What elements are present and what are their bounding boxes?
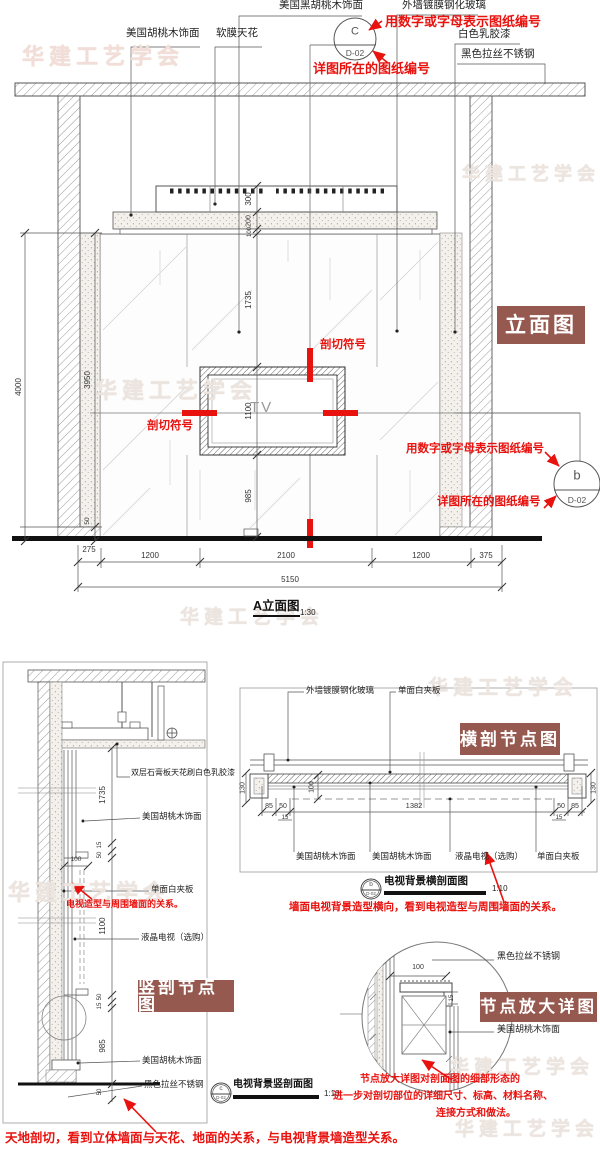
label-walnut-a-hs: 美国胡桃木饰面 [296, 852, 356, 861]
hs-title-underline [384, 891, 486, 895]
badge-horizontal-section: 横剖节点图 [460, 723, 560, 755]
dim-hs-85l: 85 [265, 803, 273, 810]
note-cut-symbol-top: 剖切符号 [320, 340, 366, 352]
dim-node-15: 15 [449, 995, 455, 1002]
note-cut-symbol-left: 剖切符号 [147, 421, 193, 433]
vs-title-sheet: D-02 [216, 1096, 226, 1101]
vs-title-underline [233, 1095, 319, 1099]
callout-letter-b: b [573, 469, 580, 482]
dim-5150: 5150 [281, 576, 299, 584]
label-walnut-veneer: 美国胡桃木饰面 [126, 28, 200, 39]
dim-hs-15r: 15 [556, 815, 563, 821]
dim-vs-1100: 1100 [99, 917, 107, 934]
dim-hs-85r: 85 [571, 803, 579, 810]
label-black-walnut: 美国黑胡桃木饰面 [279, 0, 363, 11]
callout-letter-c: C [351, 27, 359, 38]
watermark: 华建工艺学会 [22, 46, 184, 68]
dim-1200-right: 1200 [412, 552, 430, 560]
hs-title-letter: b [369, 882, 373, 889]
dim-200: 200 [246, 215, 253, 227]
vs-title: 电视背景竖剖面图 [233, 1080, 313, 1090]
dim-vs-15a: 15 [97, 842, 103, 849]
dim-4000: 4000 [15, 378, 23, 396]
note-drawing-number-top: 用数字或字母表示图纸编号 [385, 15, 541, 28]
label-walnut-bottom: 美国胡桃木饰面 [142, 1056, 202, 1065]
watermark: 华建工艺学会 [462, 165, 600, 183]
callout-sheet-b: D-02 [568, 496, 586, 505]
dim-hs-130-right: 130 [591, 782, 598, 794]
note-node-line1: 节点放大详图对剖面图的细部形态的 [360, 1075, 520, 1085]
note-drawing-number-right: 用数字或字母表示图纸编号 [406, 444, 544, 456]
dim-50-floor: 50 [85, 517, 92, 524]
label-white-board: 单面白夹板 [151, 885, 194, 894]
dim-1200-left: 1200 [141, 552, 159, 560]
note-sheet-number-top: 详图所在的图纸编号 [313, 62, 430, 75]
dim-985: 985 [245, 489, 253, 502]
label-glass-hs: 外墙镀膜钢化玻璃 [306, 686, 374, 695]
dim-vs-1735: 1735 [99, 786, 107, 804]
label-lcd-tv: 液晶电视（选购） [141, 933, 209, 942]
label-gypsum-ceiling: 双层石膏板天花刷白色乳胶漆 [131, 769, 235, 777]
dim-375: 375 [479, 552, 492, 560]
dim-vs-50b: 50 [97, 994, 103, 1001]
hs-title-sheet: D-02 [366, 892, 376, 897]
dim-hs-1382: 1382 [406, 802, 423, 810]
dim-vs-15b: 15 [97, 1003, 103, 1010]
dim-vs-50a: 50 [97, 852, 103, 859]
label-black-steel: 黑色拉丝不锈钢 [461, 49, 535, 60]
dim-3950: 3950 [84, 371, 92, 389]
note-node-line2: 进一步对剖切部位的详细尺寸、标高、材料名称、 [333, 1092, 553, 1102]
label-walnut-top: 美国胡桃木饰面 [142, 812, 202, 821]
label-white-board-top-hs: 单面白夹板 [398, 686, 441, 695]
dim-vs-100: 100 [71, 857, 82, 864]
dim-2100: 2100 [277, 552, 295, 560]
note-tv-relation: 电视造型与周围墙面的关系。 [66, 900, 183, 909]
watermark: 华建工艺学会 [428, 678, 578, 698]
badge-node-detail: 节点放大详图 [480, 992, 597, 1022]
label-walnut-b-hs: 美国胡桃木饰面 [372, 852, 432, 861]
note-sheet-number-right: 详图所在的图纸编号 [437, 497, 541, 509]
dim-hs-15l: 15 [282, 815, 289, 821]
badge-vertical-section: 竖剖节点图 [138, 980, 234, 1012]
label-white-paint: 白色乳胶漆 [458, 29, 511, 40]
dim-1735: 1735 [245, 291, 253, 309]
label-soft-ceiling: 软膜天花 [216, 28, 258, 39]
label-white-board-hs: 单面白夹板 [537, 852, 580, 861]
label-coated-glass: 外墙镀膜钢化玻璃 [402, 0, 486, 11]
dim-hs-130-left: 130 [240, 782, 247, 794]
dim-hs-100: 100 [309, 781, 316, 793]
note-node-line3: 连接方式和做法。 [436, 1109, 516, 1119]
horizontal-section-drawing [240, 688, 597, 902]
hs-title: 电视背景横剖面图 [384, 876, 468, 887]
dim-275: 275 [82, 546, 95, 554]
note-horizontal-relation: 墙面电视背景造型横向，看到电视造型与周围墙面的关系。 [289, 902, 562, 913]
dim-hs-50r: 50 [557, 803, 565, 810]
dim-vs-50c: 50 [97, 1089, 103, 1096]
tv-label: TV [250, 400, 273, 415]
elevation-title: A立面图 [253, 600, 300, 617]
dim-vs-985: 985 [99, 1039, 107, 1052]
note-bottom-summary: 天地剖切，看到立体墙面与天花、地面的关系，与电视背景墙造型关系。 [5, 1132, 405, 1145]
label-black-steel-node: 黑色拉丝不锈钢 [497, 952, 560, 961]
label-lcd-hs: 液晶电视（选购） [455, 852, 523, 861]
dim-1100: 1100 [245, 402, 253, 419]
dim-hs-50l: 50 [279, 803, 287, 810]
dim-100: 100 [247, 227, 253, 237]
cad-sheet: 华建工艺学会 华建工艺学会 华建工艺学会 华建工艺学会 华建工艺学会 华建工艺学… [0, 0, 600, 1152]
badge-elevation: 立面图 [497, 306, 585, 344]
dim-300: 300 [245, 192, 253, 205]
label-black-steel-bottom: 黑色拉丝不锈钢 [144, 1080, 204, 1089]
elevation-scale: 1:30 [300, 609, 316, 617]
watermark: 华建工艺学会 [95, 380, 257, 402]
label-walnut-node: 美国胡桃木饰面 [497, 1025, 560, 1034]
dim-node-100: 100 [412, 964, 424, 971]
vs-title-letter: c [219, 1086, 222, 1093]
watermark: 华建工艺学会 [455, 1120, 599, 1139]
hs-scale: 1:10 [492, 885, 508, 893]
callout-sheet-c: D-02 [346, 49, 364, 58]
